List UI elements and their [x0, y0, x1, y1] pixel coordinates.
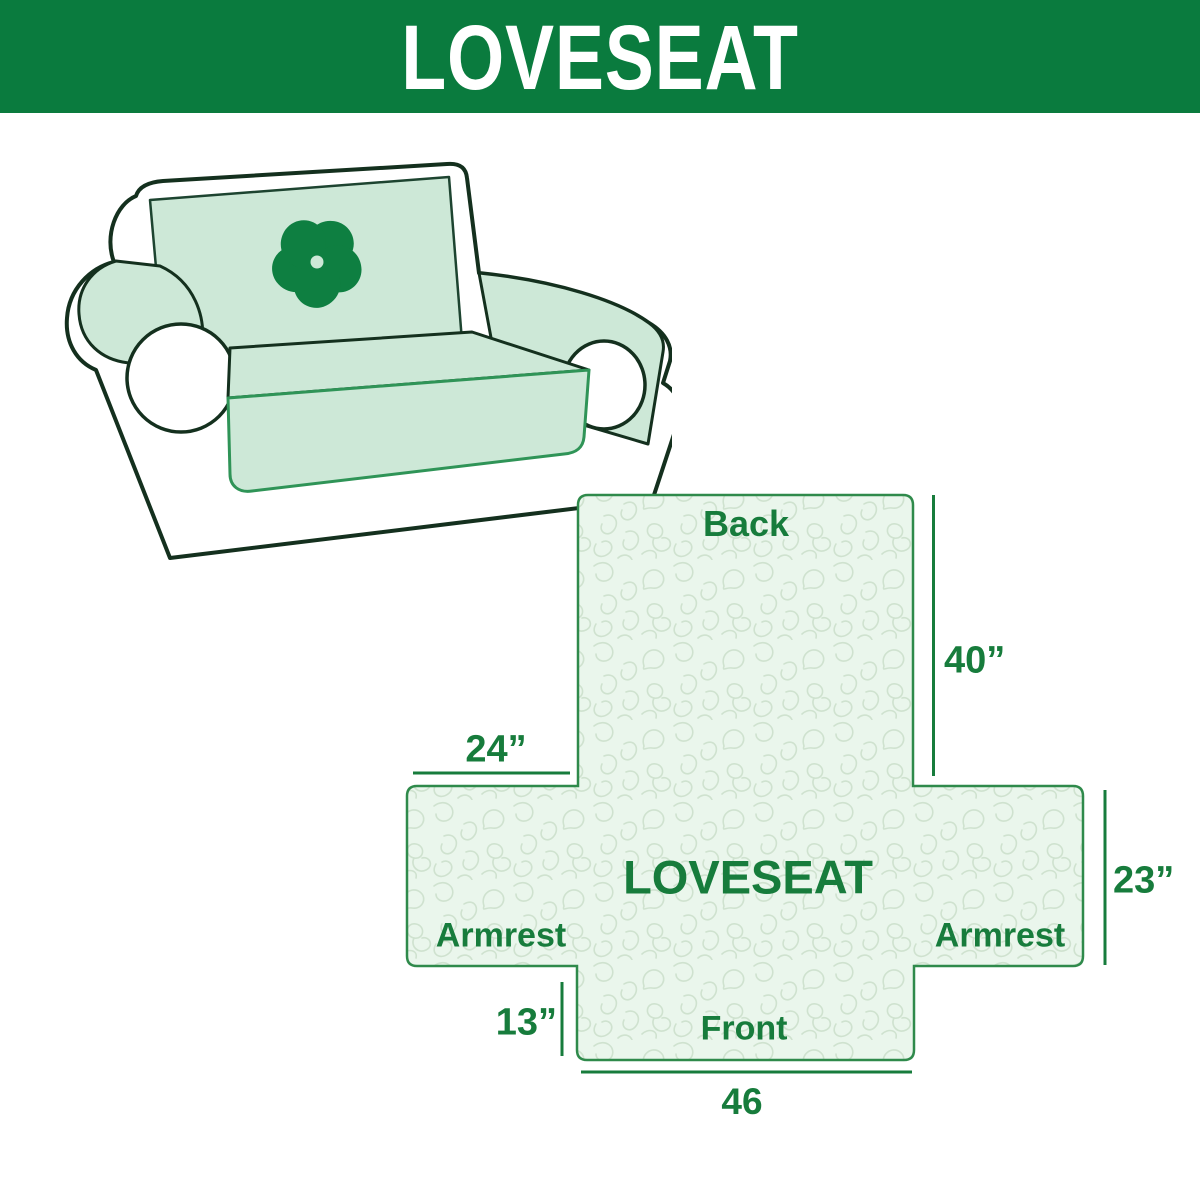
front-width-dimension-value: 46	[721, 1081, 762, 1123]
armrest-left-label: Armrest	[436, 917, 566, 956]
front-section-label: Front	[701, 1010, 788, 1049]
side-dimension-value: 23”	[1113, 860, 1174, 903]
armrest-right-label: Armrest	[935, 917, 1065, 956]
front-skirt-dimension-value: 13”	[496, 1002, 557, 1045]
back-section-label: Back	[703, 503, 789, 545]
cover-outline-shape	[407, 495, 1083, 1060]
product-infographic: LOVESEAT	[0, 0, 1200, 1200]
cover-dimension-diagram	[0, 0, 1200, 1200]
diagram-center-label: LOVESEAT	[623, 850, 873, 905]
back-dimension-value: 40”	[944, 640, 1005, 683]
armrest-dimension-value: 24”	[465, 729, 526, 772]
